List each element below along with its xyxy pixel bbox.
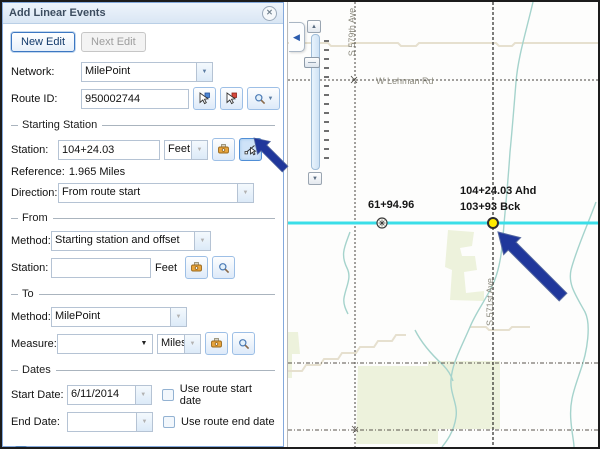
chevron-down-icon[interactable]: ▼ [194,231,211,251]
zoom-slider-thumb[interactable] [304,57,320,68]
panel-body: New Edit Next Edit Network: MilePoint ▼ … [3,24,283,449]
collapse-panel-button[interactable]: ◀ [289,22,305,52]
station-tool-icon [210,337,223,350]
new-edit-button[interactable]: New Edit [11,32,75,52]
dropdown-icon[interactable]: ▼ [136,334,153,354]
road-label-west-avenue: S 579th Ave [347,8,357,56]
from-legend: From [11,212,275,224]
from-station-input[interactable] [51,258,151,278]
select-route-button[interactable] [193,87,216,110]
measure-locate-button[interactable] [205,332,228,355]
chevron-down-icon[interactable]: ▼ [237,183,254,203]
map-canvas[interactable]: W Lehman Rd S 579th Ave S 571st Ave 61+9… [287,2,598,447]
to-legend: To [11,288,275,300]
zoom-tick [324,148,329,150]
zoom-tick [324,58,329,60]
zoom-in-icon: ▲ [311,24,317,30]
start-date-picker[interactable]: 6/11/2014 ▼ [67,385,152,405]
app-window: Add Linear Events ✕ New Edit Next Edit N… [0,0,600,449]
measure-value [57,334,136,354]
from-station-unit: Feet [155,262,177,274]
measure-label: Measure: [11,338,57,350]
search-icon [218,262,230,274]
chevron-down-icon[interactable]: ▼ [136,412,153,432]
road-label-east-avenue: S 571st Ave [485,278,495,326]
from-method-label: Method: [11,235,51,247]
end-date-picker[interactable]: ▼ [67,412,153,432]
chevron-down-icon[interactable]: ▼ [135,385,152,405]
clear-route-selection-button[interactable] [220,87,243,110]
use-route-end-date-label: Use route end date [181,416,275,428]
network-combo[interactable]: MilePoint ▼ [81,62,213,82]
search-icon [238,338,250,350]
measure-unit-combo[interactable]: Miles ▼ [157,334,201,354]
measure-unit-value: Miles [157,334,184,354]
zoom-tick [324,67,329,69]
to-method-label: Method: [11,311,51,323]
measure-search-button[interactable] [232,332,255,355]
zoom-tick [324,76,329,78]
station-input[interactable] [58,140,160,160]
start-date-label: Start Date: [11,389,67,401]
route-id-label: Route ID: [11,93,81,105]
from-method-value: Starting station and offset [51,231,194,251]
station-unit-combo[interactable]: Feet ▼ [164,140,208,160]
network-value: MilePoint [81,62,196,82]
dates-legend: Dates [11,364,275,376]
chevron-down-icon[interactable]: ▼ [184,334,201,354]
reference-value: 1.965 Miles [69,166,125,178]
reference-label: Reference: [11,166,65,178]
direction-combo[interactable]: From route start ▼ [58,183,254,203]
add-linear-events-panel: Add Linear Events ✕ New Edit Next Edit N… [2,2,284,447]
collapse-icon: ◀ [293,32,300,43]
zoom-tick [324,139,329,141]
station-label-back: 103+93 Bck [460,201,521,213]
search-icon [254,93,266,105]
zoom-out-button[interactable]: ▼ [308,172,322,185]
to-method-value: MilePoint [51,307,170,327]
zoom-tick [324,49,329,51]
zoom-slider-rail[interactable] [311,34,320,170]
direction-label: Direction: [11,187,58,199]
map-graphics: W Lehman Rd S 579th Ave S 571st Ave 61+9… [288,2,598,447]
direction-value: From route start [58,183,237,203]
from-station-label: Station: [11,262,51,274]
use-route-start-date-checkbox[interactable] [162,389,174,401]
station-tool-icon [217,143,230,156]
station-label-ahead: 104+24.03 Ahd [460,185,536,197]
to-method-combo[interactable]: MilePoint ▼ [51,307,187,327]
station-unit-value: Feet [164,140,191,160]
zoom-tick [324,157,329,159]
zoom-tick [324,112,329,114]
panel-header: Add Linear Events ✕ [3,3,283,24]
cursor-clear-icon [225,92,238,105]
minor-roads [288,43,598,371]
start-date-value: 6/11/2014 [67,385,135,405]
cursor-select-icon [198,92,211,105]
use-route-end-date-checkbox[interactable] [163,416,175,428]
zoom-tick [324,121,329,123]
route-search-button[interactable]: ▼ [247,87,280,110]
measure-combo[interactable]: ▼ [57,334,153,354]
road-label-horizontal: W Lehman Rd [376,76,434,86]
from-station-locate-button[interactable] [185,256,208,279]
panel-title: Add Linear Events [9,7,106,19]
end-date-value [67,412,136,432]
annotation-arrow-map [498,232,567,301]
station-tool-icon [190,261,203,274]
next-edit-button[interactable]: Next Edit [81,32,146,52]
from-station-search-button[interactable] [212,256,235,279]
zoom-tick [324,130,329,132]
chevron-down-icon[interactable]: ▼ [170,307,187,327]
chevron-down-icon[interactable]: ▼ [191,140,208,160]
annotation-arrow-panel [251,135,293,177]
network-label: Network: [11,66,81,78]
zoom-tick [324,85,329,87]
end-date-label: End Date: [11,416,67,428]
close-icon[interactable]: ✕ [262,6,277,21]
chevron-down-icon[interactable]: ▼ [196,62,213,82]
use-route-start-date-label: Use route start date [180,383,275,407]
zoom-tick [324,40,329,42]
from-method-combo[interactable]: Starting station and offset ▼ [51,231,211,251]
selected-station-point [488,218,498,228]
station-marker [377,218,387,228]
zoom-in-button[interactable]: ▲ [307,20,321,33]
station-label: Station: [11,144,58,156]
station-label-left: 61+94.96 [368,199,414,211]
zoom-tick [324,103,329,105]
starting-station-legend: Starting Station [11,119,275,131]
route-id-input[interactable] [81,89,189,109]
station-locate-button[interactable] [212,138,235,161]
zoom-out-icon: ▼ [312,176,318,182]
chevron-down-icon: ▼ [268,96,274,102]
zoom-tick [324,94,329,96]
